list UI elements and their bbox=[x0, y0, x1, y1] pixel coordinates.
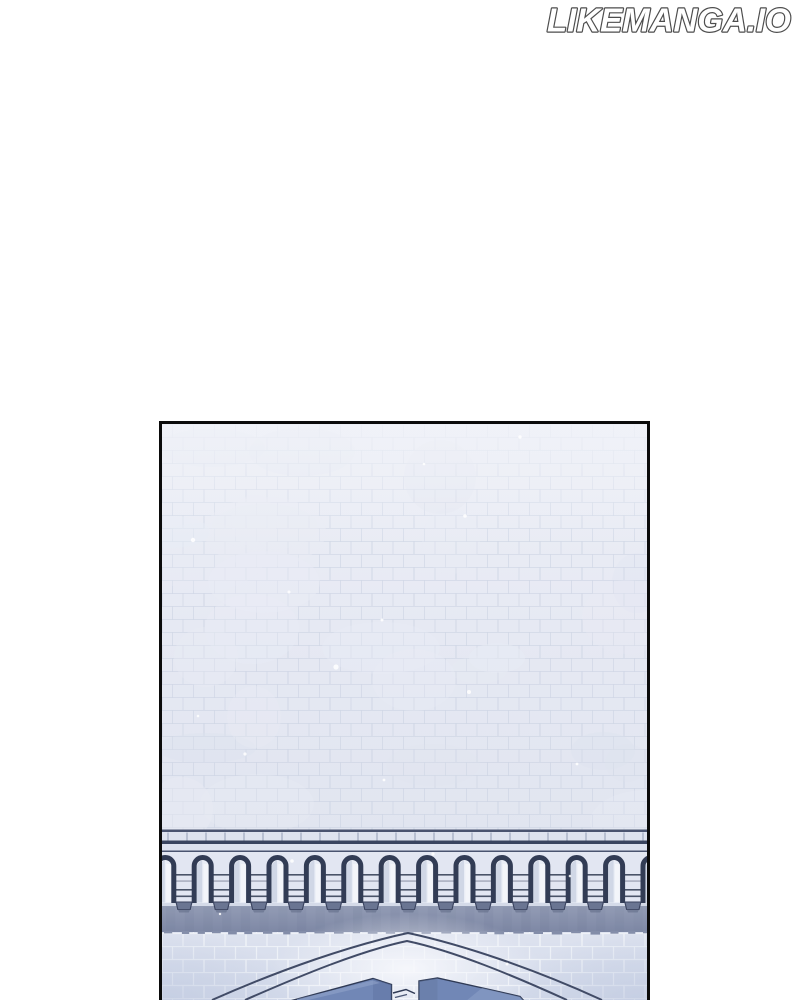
svg-text:LIKEMANGA.IO: LIKEMANGA.IO bbox=[547, 2, 791, 39]
